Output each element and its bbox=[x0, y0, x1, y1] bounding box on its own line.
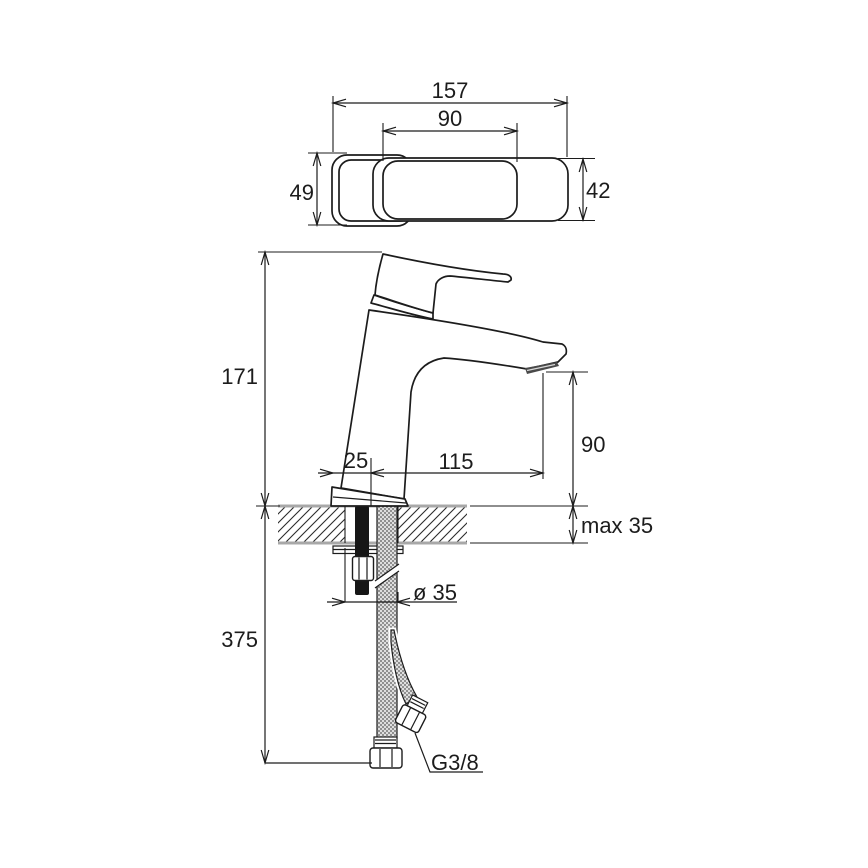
dim-label-hole-diameter: ø 35 bbox=[413, 580, 457, 605]
dim-label-spout-reach: 115 bbox=[438, 449, 473, 474]
dim-label-spout-height: 90 bbox=[581, 432, 605, 457]
dim-label-body-width: 42 bbox=[586, 178, 610, 203]
dim-label-hose-thread: G3/8 bbox=[431, 750, 479, 775]
hose-nut-vertical bbox=[370, 748, 402, 768]
counter-hatch-right bbox=[398, 508, 467, 543]
top-view bbox=[332, 155, 568, 226]
dim-label-overall-length: 157 bbox=[432, 78, 469, 103]
dim-label-axis-offset: 25 bbox=[344, 448, 368, 473]
mounting-stud bbox=[355, 506, 369, 595]
counter-hatch-left bbox=[278, 508, 345, 543]
plan-mixer-body bbox=[373, 158, 568, 221]
drawing-canvas: 157 90 49 42 bbox=[0, 0, 868, 868]
dim-label-handle-width: 49 bbox=[290, 180, 314, 205]
dim-label-total-height: 171 bbox=[221, 364, 258, 389]
dim-label-below-deck: 375 bbox=[221, 627, 258, 652]
supply-hose-vertical bbox=[377, 505, 397, 738]
dim-label-deck-thickness: max 35 bbox=[581, 513, 653, 538]
dim-label-lever-length: 90 bbox=[438, 106, 462, 131]
stud-nut bbox=[353, 557, 374, 581]
page-background bbox=[0, 0, 868, 868]
hose-collar-vertical bbox=[374, 737, 397, 748]
